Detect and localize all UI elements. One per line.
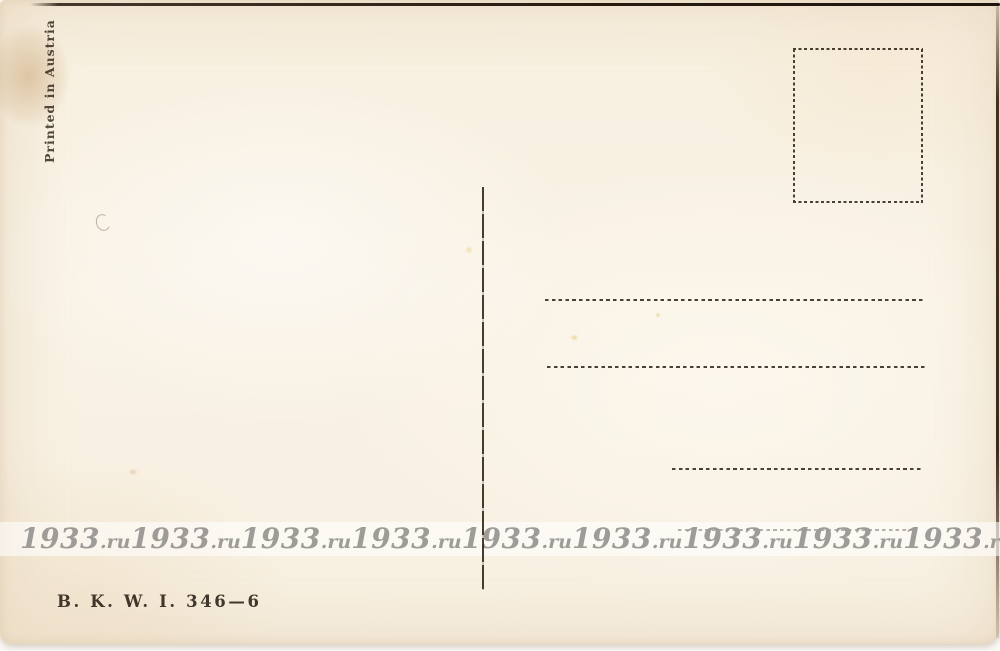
watermark-text: 1933.ru [572, 525, 682, 553]
printing-note: Printed in Austria [42, 19, 57, 163]
watermark-text: 1933.ru [903, 525, 1000, 553]
address-line-3 [672, 468, 923, 470]
paper-speck [465, 246, 473, 254]
watermark-band: 1933.ru 1933.ru 1933.ru 1933.ru 1933.ru … [0, 522, 1000, 556]
watermark-text: 1933.ru [130, 525, 240, 553]
watermark-text: 1933.ru [351, 525, 461, 553]
watermark-text: 1933.ru [20, 525, 130, 553]
watermark-text: 1933.ru [793, 525, 903, 553]
address-line-1 [545, 299, 925, 301]
postcard-back: Printed in Austria 1933.ru 1933.ru 1933.… [0, 0, 1000, 644]
paper-speck [570, 334, 579, 341]
address-line-2 [547, 366, 925, 368]
watermark-text: 1933.ru [241, 525, 351, 553]
scanned-postcard-photo: Printed in Austria 1933.ru 1933.ru 1933.… [0, 0, 1000, 651]
publisher-code: B. K. W. I. 346—6 [57, 592, 262, 611]
pencil-mark [94, 212, 113, 232]
watermark-text: 1933.ru [682, 525, 792, 553]
paper-speck [655, 312, 661, 318]
paper-speck [128, 468, 138, 476]
scan-edge-top [30, 3, 1000, 6]
watermark-text: 1933.ru [462, 525, 572, 553]
divider-line [482, 187, 484, 590]
stamp-box [793, 48, 923, 203]
